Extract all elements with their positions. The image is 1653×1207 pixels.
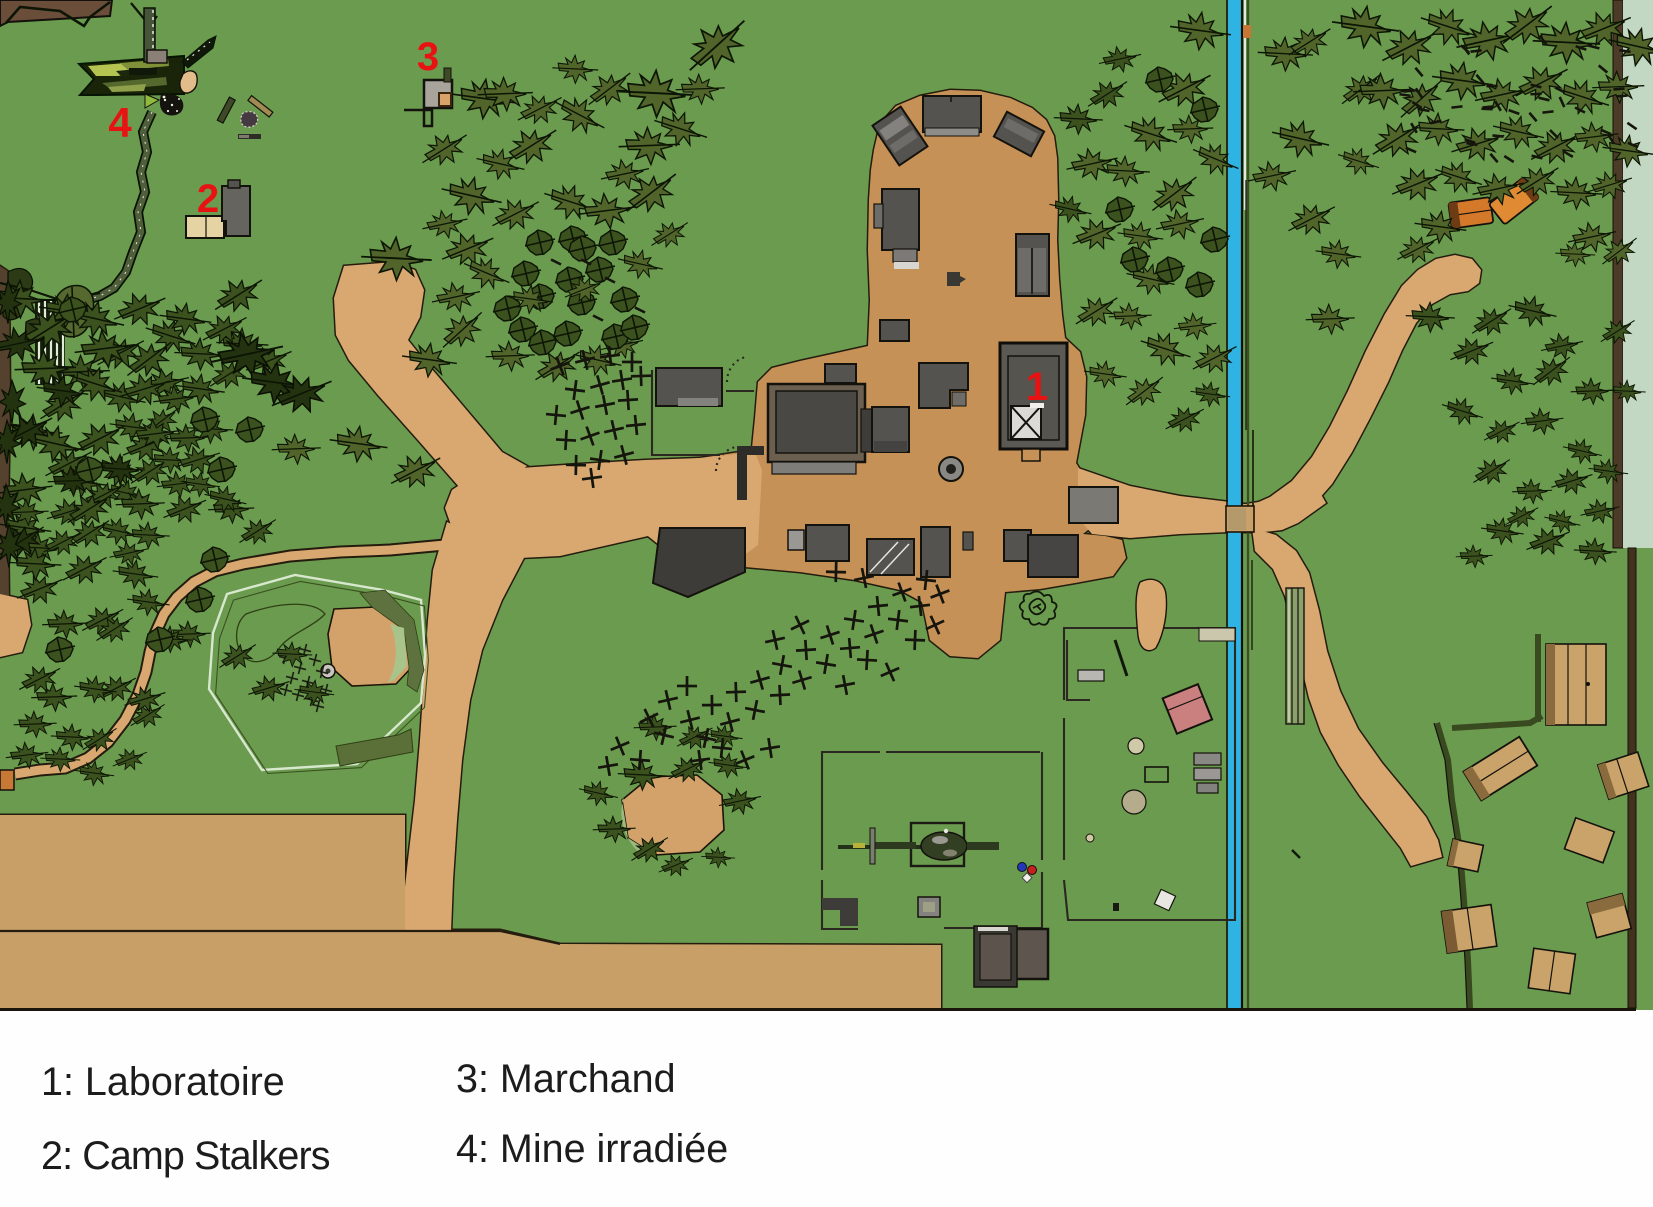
svg-text:4: Mine irradiée: 4: Mine irradiée xyxy=(456,1127,728,1171)
svg-text:2: Camp Stalkers: 2: Camp Stalkers xyxy=(41,1134,330,1178)
svg-text:4: 4 xyxy=(108,99,132,146)
svg-text:1: 1 xyxy=(1026,365,1048,409)
svg-text:1: Laboratoire: 1: Laboratoire xyxy=(41,1060,285,1104)
svg-text:2: 2 xyxy=(197,177,219,221)
svg-text:3: Marchand: 3: Marchand xyxy=(456,1057,676,1101)
svg-text:3: 3 xyxy=(417,35,439,79)
